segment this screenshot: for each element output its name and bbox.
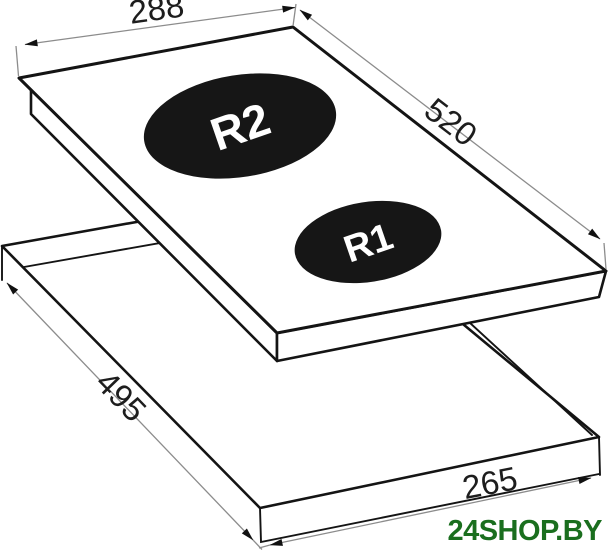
dimension-value-265: 265 [459, 459, 520, 506]
ext-line-520-right [604, 243, 606, 269]
ext-line-288-left [16, 46, 19, 76]
dimension-value-288: 288 [127, 0, 187, 31]
shop-watermark: 24SHOP.BY [447, 515, 602, 547]
cooktop-dimension-diagram: R2 R1 288 520 495 265 24SHOP.BY [0, 0, 608, 550]
ext-line-265-tail [259, 545, 270, 548]
diagram-canvas: R2 R1 288 520 495 265 24SHOP.BY [0, 0, 608, 550]
